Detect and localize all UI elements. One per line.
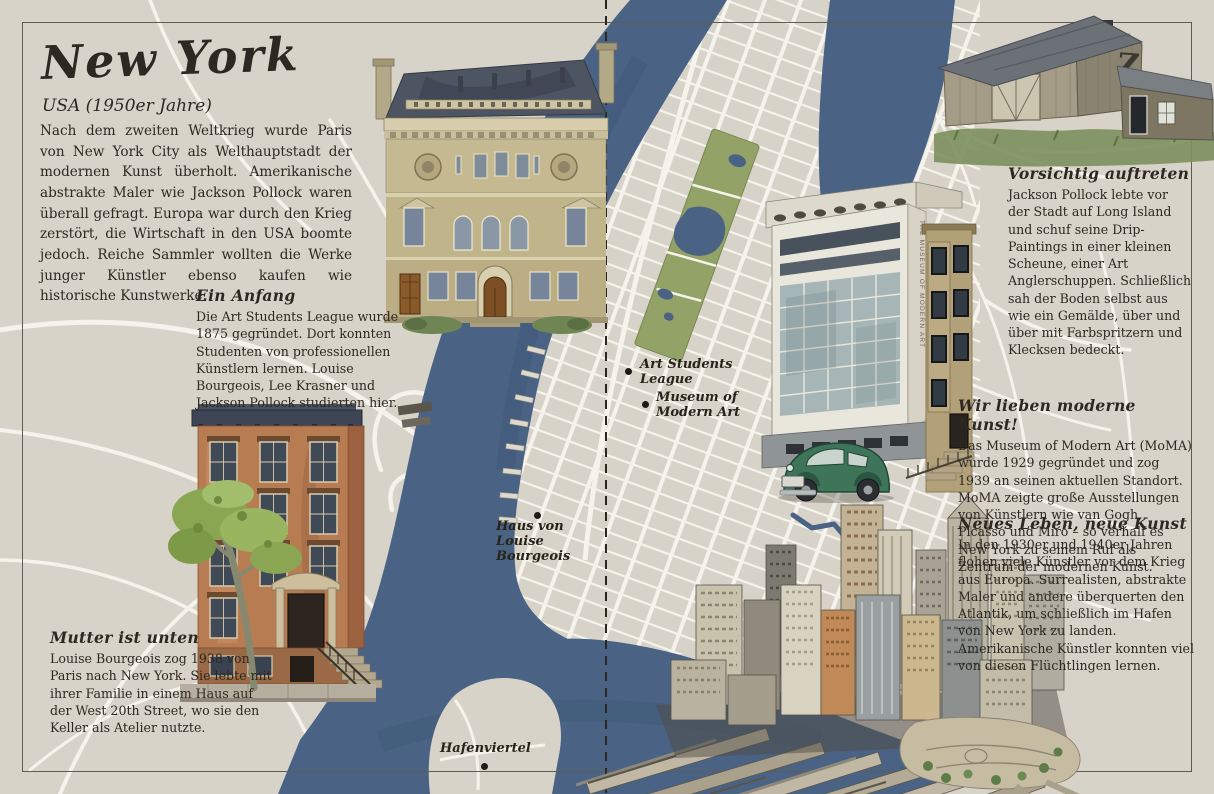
map-label-haus-louise: Haus von Louise Bourgeois — [496, 520, 570, 565]
note-title: Mutter ist unten — [50, 628, 272, 647]
note-vorsichtig: Vorsichtig auftreten Jackson Pollock leb… — [1008, 164, 1192, 359]
note-title: Wir lieben moderne Kunst! — [958, 396, 1192, 434]
moma-sign-text: THE MUSEUM OF MODERN ART — [918, 220, 925, 348]
license-plate — [782, 476, 804, 487]
page-subtitle: USA (1950er Jahre) — [42, 96, 301, 116]
intro-paragraph: Nach dem zweiten Weltkrieg wurde Paris v… — [40, 121, 352, 307]
art-students-league-illustration — [366, 26, 624, 341]
map-label-moma: Museum of Modern Art — [656, 391, 740, 421]
title-block: New York USA (1950er Jahre) — [42, 36, 301, 116]
pollock-barn-illustration: Z — [934, 12, 1214, 172]
map-marker-dot — [642, 401, 649, 408]
map-marker-dot — [534, 512, 541, 519]
map-label-hafenviertel: Hafenviertel — [440, 742, 531, 757]
map-marker-dot — [481, 763, 488, 770]
moma-building-illustration: THE MUSEUM OF MODERN ART — [756, 168, 981, 503]
note-mutter: Mutter ist unten Louise Bourgeois zog 19… — [50, 628, 272, 736]
house-door — [288, 594, 324, 648]
note-title: Vorsichtig auftreten — [1008, 164, 1192, 183]
note-ein-anfang: Ein Anfang Die Art Students League wurde… — [196, 286, 404, 412]
note-title: Neues Leben, neue Kunst — [958, 514, 1198, 533]
note-neues-leben: Neues Leben, neue Kunst In den 1930er un… — [958, 514, 1198, 674]
page-title: New York — [40, 27, 300, 90]
map-marker-dot — [625, 368, 632, 375]
note-body: Louise Bourgeois zog 1938 von Paris nach… — [50, 650, 272, 736]
map-label-art-students-league: Art Students League — [640, 358, 732, 388]
barn-doorway — [1130, 96, 1147, 134]
note-body: Jackson Pollock lebte vor der Stadt auf … — [1008, 186, 1192, 359]
note-body: In den 1930er und 1940er Jahren flohen v… — [958, 536, 1198, 674]
note-title: Ein Anfang — [196, 286, 404, 305]
note-body: Die Art Students League wurde 1875 gegrü… — [196, 308, 404, 412]
book-spread: New York USA (1950er Jahre) Nach dem zwe… — [0, 0, 1214, 794]
